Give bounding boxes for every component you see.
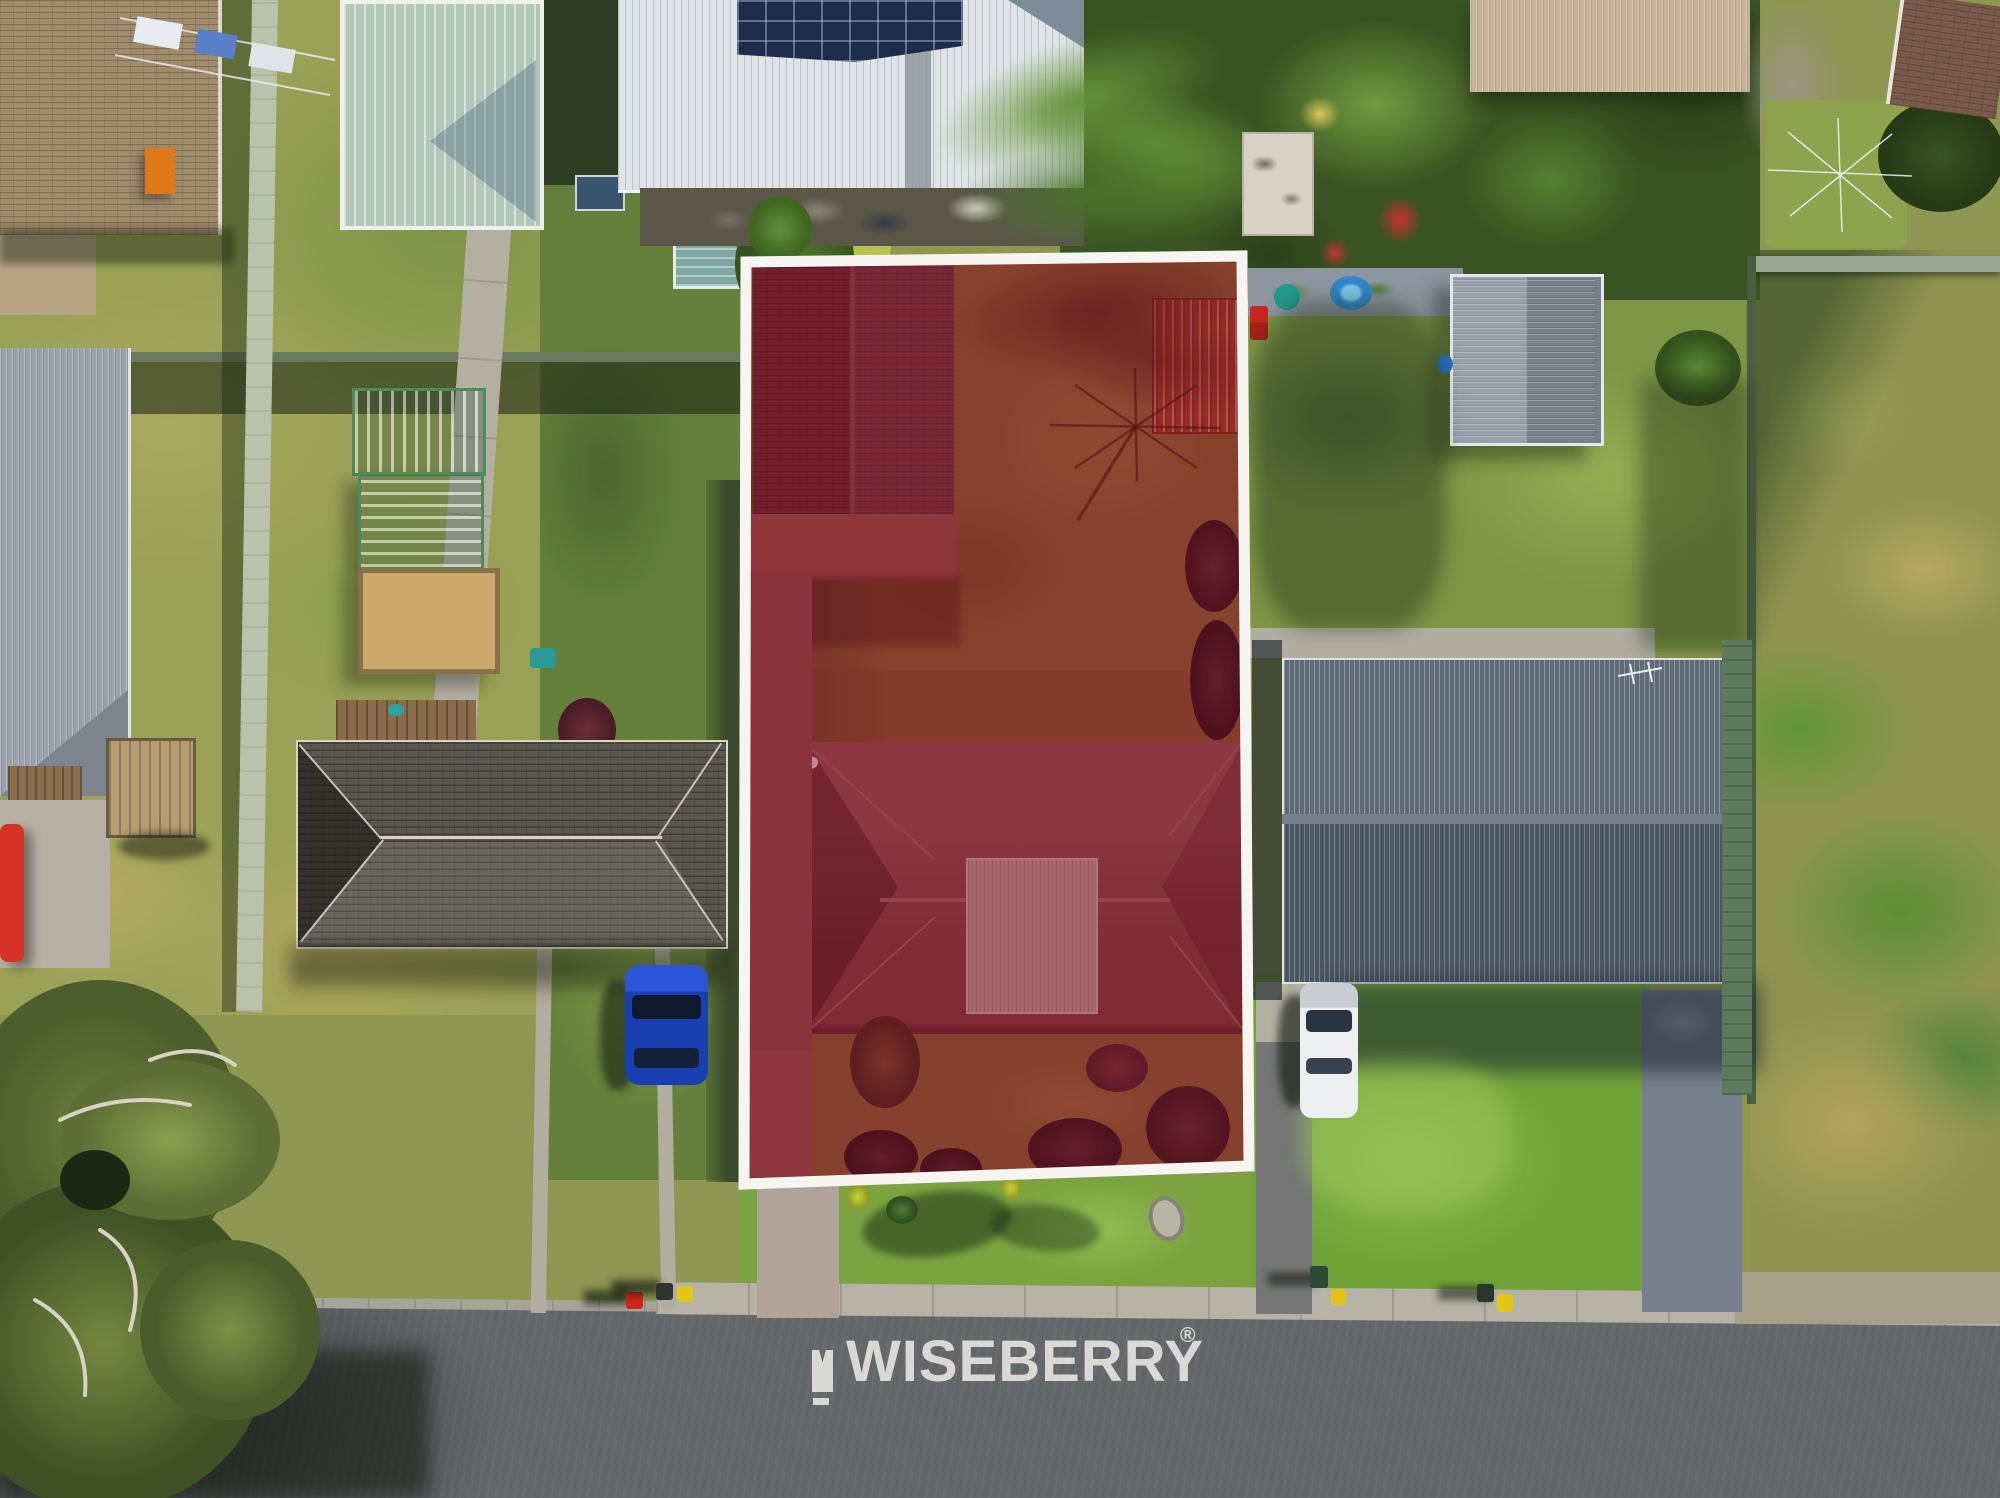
dark-roof-ridge [380,836,662,839]
lot-front-shrub [1028,1118,1122,1180]
right-house-ridge-cap [1282,814,1727,824]
lot-house-inset-roof [966,858,1098,1014]
box-trailer [106,738,196,838]
dark-green-bin [656,1283,673,1300]
green-stall-frame [358,472,484,570]
yellow-bin [677,1286,693,1302]
lot-driveway-crossing [757,1186,839,1318]
lot-shrub [1190,620,1244,740]
watermark: WISEBERRY ® [810,1322,1250,1418]
timber-deck [8,766,82,802]
right-house-roof-lower [1282,820,1729,984]
wiseberry-logo-dash [813,1398,829,1405]
yellow-plant [846,1184,870,1210]
white-car-windshield [1306,1010,1352,1032]
watermark-brand-text: WISEBERRY [846,1328,1204,1395]
bin-shadow [612,1280,660,1295]
wiseberry-logo-icon [812,1350,833,1392]
back-path-right [1250,628,1655,658]
right-shed-ribs [1453,277,1595,437]
round-bush [748,196,812,262]
backyard-tree-shadow [1255,300,1445,630]
blue-car-windshield [632,995,701,1019]
yellow-plant [1000,1176,1022,1200]
right-house-wall-gap-shadow [1252,640,1282,1000]
fence-shadow-right-yard [1640,380,1750,650]
dark-green-bin [1477,1284,1494,1302]
green-stall-frame [352,388,486,476]
vacant-lot-scrub [1750,250,2000,1315]
lot-front-shrub [1146,1086,1230,1170]
agave-plant [886,1196,918,1224]
dark-green-fence [1722,640,1752,1095]
garden-sandbox [358,568,500,674]
red-bins [1250,306,1268,340]
gravel-shoulder [1735,1272,2000,1324]
red-flowers [1320,238,1350,268]
rusty-white-shed [1242,132,1314,236]
teal-toy [530,648,556,668]
white-car-roof-line [1306,1058,1352,1074]
white-car [1300,983,1358,1118]
subject-lot-interior [738,250,1256,1190]
garden-hose [388,704,404,716]
dark-green-bin [1310,1266,1328,1288]
top-fence-right [1752,256,2000,272]
bin-shadow [1268,1272,1316,1286]
yellow-bin [1497,1294,1513,1312]
eucalyptus-canopy [140,1240,320,1420]
blue-car-rear-glass [634,1048,699,1068]
brown-roof-top-right [1886,0,2000,119]
aerial-photo: WISEBERRY ® [0,0,2000,1498]
red-car [0,824,24,962]
orange-box [145,148,175,194]
trailer-wheel-shadow [118,832,210,860]
lot-shrub [1185,520,1243,612]
lot-red-bush [1086,1044,1148,1092]
lot-front-shrub [844,1130,918,1184]
back-deck-bench [336,700,476,740]
canopy-dark-hole [60,1150,130,1210]
lot-front-palm [850,1016,920,1108]
right-house-roof-upper [1282,658,1729,822]
lot-garage-right-facet [855,266,954,514]
right-house-shadow [1330,982,1760,1072]
yellow-flowers [1300,96,1340,132]
yellow-bin [1331,1289,1346,1305]
brown-tile-roof [0,0,222,235]
lot-garage-apron [746,514,956,580]
registered-trademark-symbol: ® [1180,1324,1195,1348]
red-flowers [1378,196,1422,244]
roof-shadow [0,228,235,264]
tan-roof-top-right [1470,0,1750,92]
